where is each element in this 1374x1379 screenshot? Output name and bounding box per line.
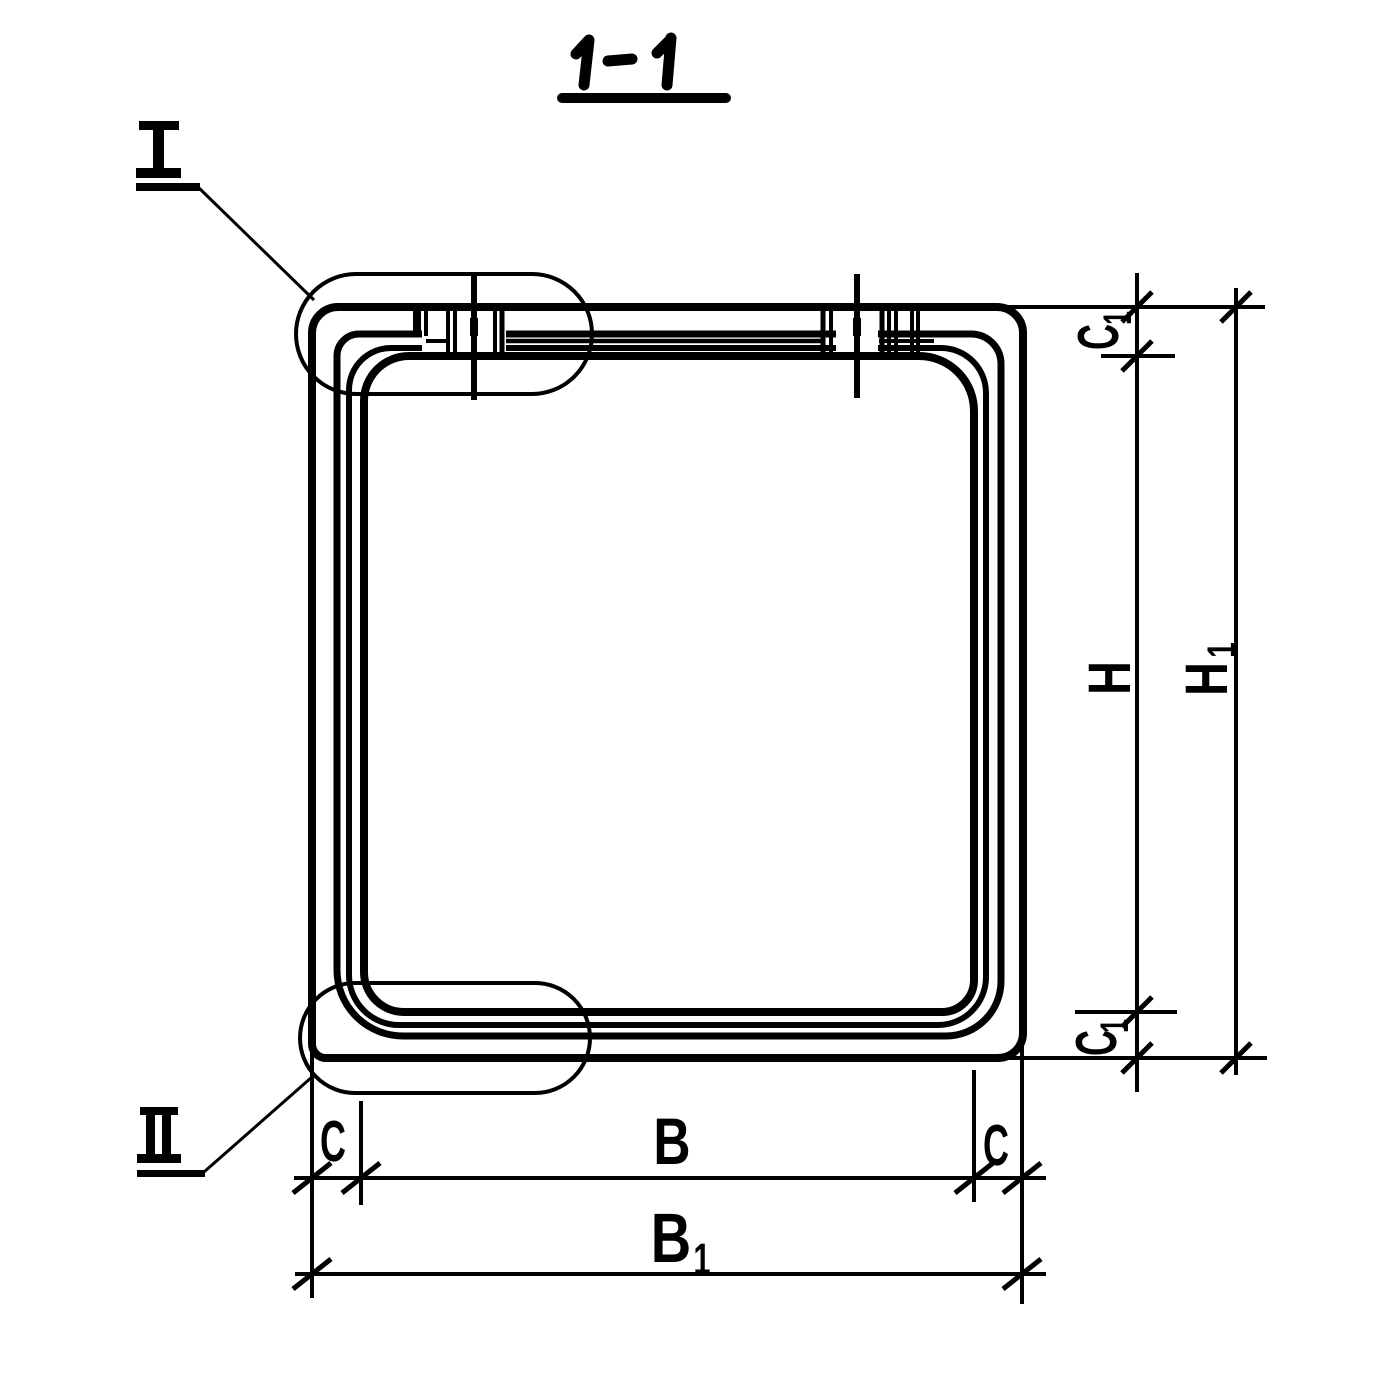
svg-text:C: C [320, 1109, 346, 1174]
svg-text:1: 1 [1093, 1019, 1137, 1033]
svg-text:B: B [653, 1104, 690, 1178]
svg-text:H: H [1076, 661, 1143, 695]
svg-text:C: C [983, 1113, 1009, 1178]
svg-text:C: C [1064, 1030, 1129, 1056]
svg-text:1: 1 [693, 1235, 710, 1284]
svg-text:B: B [651, 1199, 691, 1277]
svg-text:C: C [1066, 324, 1131, 350]
svg-text:H: H [1173, 662, 1240, 696]
svg-text:1: 1 [1096, 311, 1140, 325]
svg-text:1: 1 [1200, 642, 1244, 658]
